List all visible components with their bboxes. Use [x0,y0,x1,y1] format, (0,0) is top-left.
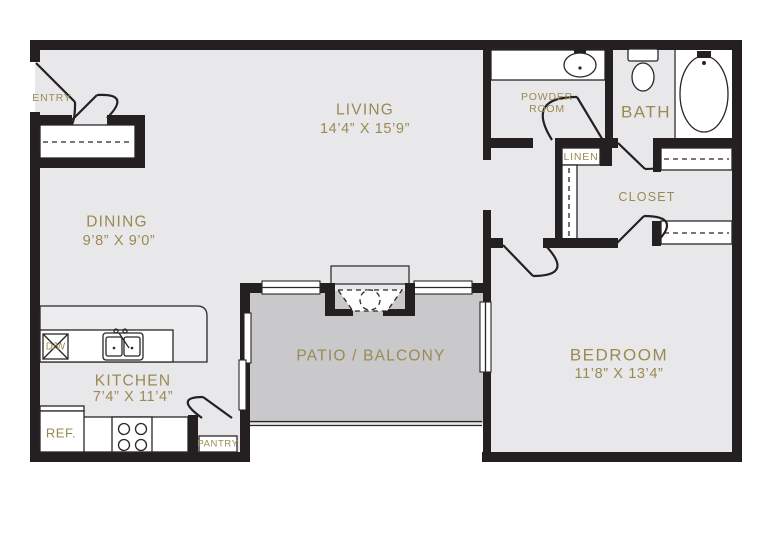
stove-icon [112,417,152,452]
entry-label: ENTRY [32,92,71,104]
floor-plan-drawing: ENTRY LIVING 14’4” X 15’9” POWDER ROOM B… [0,0,766,553]
linen-shelf [562,165,577,240]
patio-label: PATIO / BALCONY [296,348,445,365]
dining-label: DINING [86,214,147,231]
toilet-tank-icon [628,49,658,61]
pantry-label: PANTRY [197,439,238,450]
floor-plan-page: ENTRY LIVING 14’4” X 15’9” POWDER ROOM B… [0,0,766,553]
powder-sink-icon [564,53,596,77]
refrigerator: REF. [40,406,84,452]
living-dimensions: 14’4” X 15’9” [320,121,410,137]
bathtub-icon [680,56,728,132]
bedroom-label: BEDROOM [570,346,668,365]
exterior-ground [248,425,484,462]
refrigerator-label: REF. [46,426,76,441]
powder-faucet-icon [574,48,586,53]
dining-dimensions: 9’8” X 9’0” [83,233,156,249]
patio-window-right [414,281,472,294]
bedroom-dimensions: 11’8” X 13’4” [575,366,664,382]
closet-label: CLOSET [618,190,675,204]
powder-label-1: POWDER [521,91,573,103]
toilet-icon [632,63,654,91]
kitchen-dimensions: 7’4” X 11’4” [93,389,173,405]
patio-window-left [262,281,320,294]
patio-left-window-2 [239,360,246,410]
bath-label: BATH [621,103,671,122]
dishwasher-label: D/W [46,342,66,353]
living-label: LIVING [336,102,394,119]
powder-label-2: ROOM [529,103,565,115]
patio-left-window [244,313,251,363]
tub-faucet-icon [697,51,711,58]
linen-label: LINEN [564,151,599,163]
kitchen-sink-icon [103,329,143,360]
kitchen-label: KITCHEN [95,373,171,390]
dishwasher: D/W [43,334,68,359]
